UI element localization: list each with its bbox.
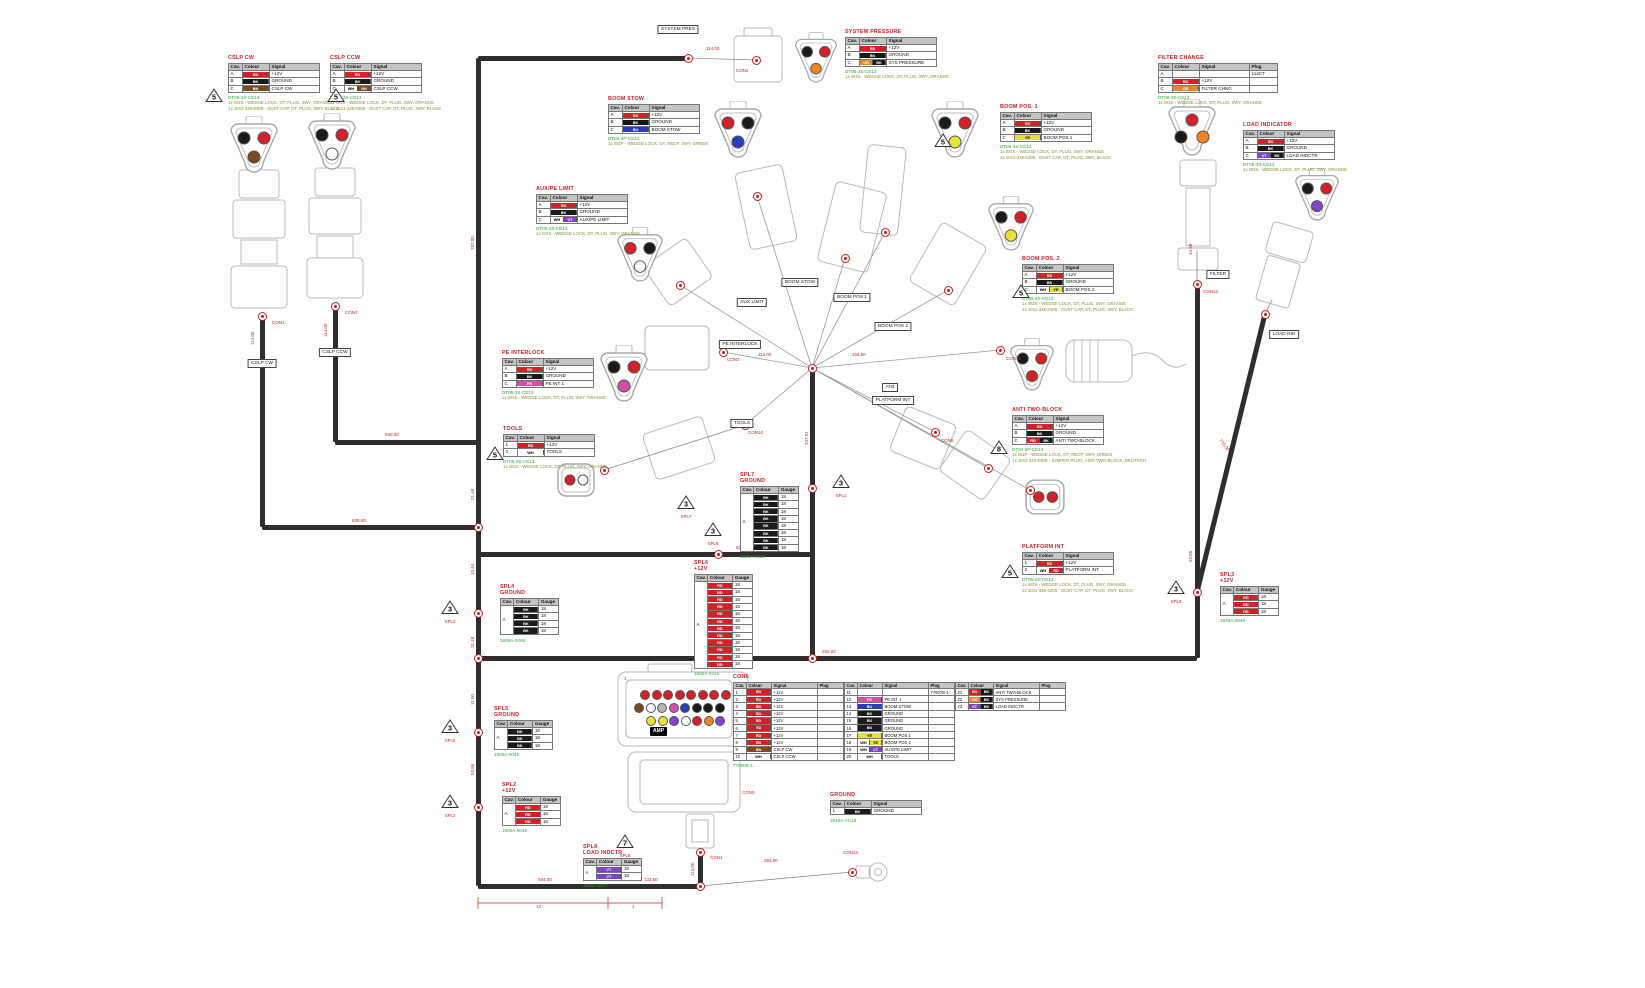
table-title: BOOM POS. 1	[1000, 104, 1111, 110]
part-number: 1926A-0046	[494, 752, 553, 757]
signal-cell: PE INT 1	[883, 696, 929, 703]
column-header: Gauge	[733, 575, 753, 582]
cavity-cell: C	[846, 59, 860, 66]
node-dot	[477, 526, 480, 529]
colour-ye: YE	[1050, 287, 1063, 292]
wire-colour-swatch: BK	[243, 79, 269, 84]
cavity-cell: 10	[734, 753, 747, 760]
junction-node	[676, 281, 685, 290]
amp-pin	[675, 690, 685, 700]
table-row: 17YEBOOM POS 1	[845, 732, 955, 739]
signal-cell: GROUND	[1042, 127, 1092, 134]
dimension-label: 787.00	[470, 236, 475, 250]
cavity-cell: 22	[956, 696, 969, 703]
table-row: 20WHTOOLS	[845, 753, 955, 760]
table-row: CORBKSYS PRESSURE	[846, 59, 937, 66]
wire-colour-swatch: BK	[514, 628, 538, 633]
dt-connector-svg	[986, 196, 1036, 252]
callout-triangle: 3SPL6	[704, 522, 722, 546]
colour-cell: RD	[708, 632, 733, 639]
cavity-cell: 8	[734, 739, 747, 746]
part-number: 1926A-0316	[740, 554, 799, 559]
plug-cell	[1040, 696, 1066, 703]
cavity-cell: A	[503, 366, 517, 373]
colour-cell: RD	[747, 717, 772, 724]
wire-colour-swatch: BK	[754, 495, 778, 500]
wire-colour-swatch: RD	[708, 611, 732, 616]
table-row: 2WHTOOLS	[504, 449, 595, 456]
cavity-cell: A	[1023, 272, 1037, 279]
cavity-cell: A	[229, 71, 243, 78]
gauge-cell: 18	[733, 647, 753, 654]
colour-cell: BK	[514, 620, 539, 627]
column-header: Colour	[1173, 64, 1200, 71]
cavity-cell: 4	[734, 710, 747, 717]
column-header: Gauge	[541, 797, 561, 804]
splice-table: Cav.ColourGaugeARD18RD18RD18	[1220, 586, 1279, 616]
gauge-cell: 18	[622, 866, 642, 873]
plug-cell	[1250, 78, 1278, 85]
svg-text:5: 5	[212, 93, 216, 102]
connector-ref-label: CON2	[736, 68, 749, 73]
signal-cell: GROUND	[883, 717, 929, 724]
table-header-row: Cav.ColourSignal	[331, 64, 422, 71]
colour-cell: VTBK	[969, 703, 994, 710]
svg-text:5: 5	[1019, 289, 1023, 298]
colour-vt: VT	[597, 874, 621, 879]
pin-table-ground: GROUNDCav.ColourSignal1BKGROUND1916A-YC1…	[830, 792, 922, 823]
table-header-row: Cav.ColourGauge	[503, 797, 561, 804]
dimension-label: 114.00	[250, 332, 255, 345]
colour-cell: YE	[858, 732, 883, 739]
splice-ref-label: SPL2	[441, 813, 459, 818]
colour-vt: VT	[1258, 153, 1271, 158]
colour-cell: RD	[747, 739, 772, 746]
table-row: CPKPE INT 1	[503, 380, 594, 387]
colour-cell: BK	[754, 523, 779, 530]
signal-cell: SYS PRESSURE	[887, 59, 937, 66]
signal-cell: TOOLS	[883, 753, 929, 760]
callout-triangle: 7SPL8	[616, 834, 634, 858]
cavity-cell: B	[229, 78, 243, 85]
table-row: CVTBKLOAD INDCTR	[1244, 152, 1335, 159]
two-pin-connector-face	[1024, 476, 1066, 523]
gauge-cell: 18	[539, 620, 559, 627]
pin-table: Cav.ColourSignalARD+12VBBKGROUNDCORBKSYS…	[845, 37, 937, 67]
table-row: 22ORBKSYS PRESSURE	[956, 696, 1066, 703]
colour-rd: RD	[747, 733, 771, 738]
splice-signal: +12V	[1220, 578, 1279, 584]
wire-colour-swatch: BK	[858, 725, 882, 730]
colour-cell: BK	[508, 735, 533, 742]
signal-cell: CSLP CCW	[772, 753, 818, 760]
plug-cell	[818, 739, 844, 746]
colour-rd: RD	[708, 633, 732, 638]
pin-table-tools: TOOLSCav.ColourSignal1RD+12V2WHTOOLSDT06…	[503, 426, 607, 470]
signal-cell: FILTER CHNG	[1200, 85, 1250, 92]
signal-cell: PLATFORM INT	[1064, 567, 1114, 574]
wire-colour-swatch: RD	[623, 113, 649, 118]
table-row: BBKGROUND	[1023, 279, 1114, 286]
junction-node	[808, 364, 817, 373]
dimension-label: 53.86	[470, 764, 475, 775]
callout-triangle: 3SPL1	[832, 474, 850, 498]
colour-bn: BN	[747, 747, 771, 752]
signal-cell: ANTI TWO-BLOCK	[1054, 437, 1104, 444]
splice-table: Cav.ColourGaugeARD18RD18RD18	[502, 796, 561, 826]
cavity-cell: C	[503, 380, 517, 387]
dimension-label: 11.00	[470, 694, 475, 705]
colour-cell: RD	[1234, 601, 1259, 608]
colour-bk: BK	[508, 736, 532, 741]
column-header: Cav.	[1244, 131, 1258, 138]
table-row: 6RD+12V	[734, 724, 844, 731]
colour-cell: YE	[1015, 134, 1042, 141]
cavity-cell: 3	[734, 703, 747, 710]
signal-cell: +12V	[578, 202, 628, 209]
colour-cell: RD	[1234, 594, 1259, 601]
cavity-cell: 6	[734, 724, 747, 731]
pin-table-aux-pe-limit: AUX/PE LIMITCav.ColourSignalARD+12VBBKGR…	[536, 186, 640, 237]
colour-cell: RD	[1037, 560, 1064, 567]
node-dot	[1264, 313, 1267, 316]
column-header: Cav.	[831, 801, 845, 808]
dimension-label: 114.00	[758, 352, 771, 357]
splice-ref-label: SPL4	[441, 619, 459, 624]
gauge-cell: 18	[539, 627, 559, 634]
column-header: Cav.	[1159, 64, 1173, 71]
cavity-cell: 2	[504, 449, 518, 456]
wire-colour-swatch: BK	[754, 545, 778, 550]
con6-groups: Cav.ColourSignalPlug1RD+12V2RD+12V3RD+12…	[733, 682, 1066, 761]
colour-rd: RD	[551, 203, 577, 208]
colour-rd: RD	[516, 812, 540, 817]
colour-rd: RD	[747, 740, 771, 745]
dimension-label: 154.00	[852, 352, 866, 357]
signal-cell: AUX/PE LIMIT	[578, 216, 628, 223]
dt-connector-face	[793, 32, 839, 89]
node-dot	[811, 367, 814, 370]
colour-cell: RD	[1015, 120, 1042, 127]
table-title: TOOLS	[503, 426, 607, 432]
table-header-row: Cav.ColourGauge	[495, 721, 553, 728]
node-dot	[477, 731, 480, 734]
column-header: Cav.	[331, 64, 345, 71]
signal-cell: BOOM POS 1	[883, 732, 929, 739]
colour-rd: RD	[1234, 609, 1258, 614]
wire-colour-swatch: RD	[708, 597, 732, 602]
boxed-label: TOOLS	[730, 419, 753, 428]
colour-rd: RD	[1037, 561, 1063, 566]
amp-pin	[669, 716, 679, 726]
wire-colour-swatch: BK	[345, 79, 371, 84]
node-dot	[477, 806, 480, 809]
column-header: Cav.	[1001, 113, 1015, 120]
wire-colour-swatch: RD	[345, 72, 371, 77]
signal-cell: PE INT 1	[544, 380, 594, 387]
colour-cell: ORBK	[969, 696, 994, 703]
cavity-cell: A	[695, 582, 708, 668]
colour-rd: RD	[708, 583, 732, 588]
wire-segment	[1195, 284, 1200, 658]
gauge-cell: 18	[733, 618, 753, 625]
pin-table-cslp-ccw: CSLP CCWCav.ColourSignalARD+12VBBKGROUND…	[330, 55, 441, 112]
cavity-cell: B	[503, 373, 517, 380]
table-row: BRD+12V	[1159, 78, 1278, 85]
gauge-cell: 18	[733, 632, 753, 639]
junction-node	[714, 550, 723, 559]
triangle-icon: 5	[1012, 284, 1030, 299]
node-dot	[884, 231, 887, 234]
wire-colour-swatch: RD	[551, 203, 577, 208]
colour-bk: BK	[514, 614, 538, 619]
cavity-cell: 23	[956, 703, 969, 710]
colour-cell: BU	[623, 126, 650, 133]
splice-table-spl5: SPL5GROUNDCav.ColourGaugeABK18BK18BK1819…	[494, 706, 553, 757]
junction-node	[752, 56, 761, 65]
svg-text:5: 5	[334, 93, 338, 102]
junction-node	[1261, 310, 1270, 319]
plug-cell	[818, 753, 844, 760]
table-row: 12PKPE INT 1	[845, 696, 955, 703]
signal-cell: +12V	[1064, 560, 1114, 567]
colour-bk: BK	[1015, 128, 1041, 133]
signal-cell: CSLP CCW	[372, 85, 422, 92]
cavity-cell: C	[1001, 134, 1015, 141]
wire-colour-swatch: RD	[708, 640, 732, 645]
cavity-cell: B	[331, 78, 345, 85]
connector-ref-label: CON5	[742, 790, 755, 795]
wire-colour-swatch: BK	[845, 809, 871, 814]
connector-ref-label: CON4	[710, 855, 723, 860]
table-row: 2WHRDPLATFORM INT	[1023, 567, 1114, 574]
dt-connector-svg	[1008, 338, 1056, 392]
column-header: Cav.	[846, 38, 860, 45]
connector-ref-label: CON3	[345, 310, 358, 315]
table-row: 1177907B-1	[845, 689, 955, 696]
svg-text:7: 7	[623, 839, 627, 848]
part-number: 1926A-0077	[583, 883, 642, 888]
cavity-cell: B	[537, 209, 551, 216]
cavity-cell: B	[846, 52, 860, 59]
dt-connector-svg	[1293, 168, 1341, 222]
svg-text:3: 3	[684, 500, 688, 509]
table-header-row: Cav.ColourGauge	[1221, 587, 1279, 594]
table-header-row: Cav.ColourSignal	[609, 105, 700, 112]
junction-node	[848, 868, 857, 877]
amp-pin-count-label: 23	[752, 726, 757, 731]
colour-wh: WH	[858, 740, 870, 745]
svg-text:3: 3	[1174, 585, 1178, 594]
table-header-row: Cav.ColourSignal	[1001, 113, 1092, 120]
table-header-row: Cav.ColourGauge	[741, 487, 799, 494]
cavity-cell: 13	[845, 703, 858, 710]
wire-colour-swatch: BK	[858, 718, 882, 723]
signal-cell: LOAD INDCTR	[994, 703, 1040, 710]
wire-colour-swatch: RD	[747, 704, 771, 709]
table-title: CON6	[733, 674, 1066, 680]
wire-colour-swatch: RD	[708, 647, 732, 652]
colour-rd: RD	[1037, 273, 1063, 278]
wire-colour-swatch: RD	[747, 733, 771, 738]
pin-table-filter-change: FILTER CHANGECav.ColourSignalPlugA114CTB…	[1158, 55, 1278, 106]
amp-pin	[646, 703, 656, 713]
column-header: Signal	[545, 435, 595, 442]
cavity-cell: 18	[845, 739, 858, 746]
signal-cell: BOOM POS 2	[883, 739, 929, 746]
junction-node	[474, 654, 483, 663]
colour-bk: BK	[754, 509, 778, 514]
colour-rd: RD	[345, 72, 371, 77]
table-header-row: Cav.ColourGauge	[695, 575, 753, 582]
column-header: Cav.	[1013, 416, 1027, 423]
column-header: Colour	[508, 721, 533, 728]
assembly-note: 1x W3S - WEDGE LOCK, DT, PLUG, 3WY, ORAN…	[536, 231, 640, 237]
colour-bk: BK	[858, 718, 882, 723]
wire-colour-swatch: RD	[860, 46, 886, 51]
table-title: BOOM POS. 2	[1022, 256, 1133, 262]
colour-cell: RD	[747, 724, 772, 731]
colour-cell: RD	[551, 202, 578, 209]
node-dot	[851, 871, 854, 874]
wire-colour-swatch: BK	[754, 523, 778, 528]
gauge-cell: 18	[779, 501, 799, 508]
cavity-cell: B	[609, 119, 623, 126]
junction-node	[258, 312, 267, 321]
colour-bk: BK	[514, 607, 538, 612]
signal-cell: +12V	[1054, 423, 1104, 430]
svg-text:3: 3	[448, 799, 452, 808]
callout-triangle: 3SPL7	[677, 495, 695, 519]
gauge-cell: 18	[539, 613, 559, 620]
colour-cell: BK	[551, 209, 578, 216]
cavity-cell: B	[1001, 127, 1015, 134]
signal-cell: BOOM STOW	[883, 703, 929, 710]
signal-cell: GROUND	[270, 78, 320, 85]
colour-rd: RD	[747, 718, 771, 723]
dimension-label: 12	[536, 904, 541, 909]
splice-signal: GROUND	[740, 478, 799, 484]
wire-colour-swatch: RD	[1234, 609, 1258, 614]
junction-node	[944, 286, 953, 295]
node-dot	[1029, 489, 1032, 492]
colour-bk: BK	[845, 809, 871, 814]
signal-cell: +12V	[772, 739, 818, 746]
wire-colour-swatch: RD	[1234, 602, 1258, 607]
wire-colour-swatch: RD	[747, 740, 771, 745]
colour-cell: WHVT	[551, 216, 578, 223]
wire-segment	[478, 56, 688, 61]
cavity-cell: A	[501, 606, 514, 635]
con6-group: Cav.ColourSignalPlug1RD+12V2RD+12V3RD+12…	[733, 682, 844, 761]
pin-table: Cav.ColourSignalARD+12VBBKGROUNDCBUBOOM …	[608, 104, 700, 134]
junction-node	[1193, 588, 1202, 597]
colour-bk: BK	[754, 545, 778, 550]
boxed-label: FILTER	[1206, 270, 1229, 279]
wire-colour-swatch: VTBK	[969, 704, 993, 709]
colour-rd: RD	[1234, 602, 1258, 607]
colour-cell: BK	[858, 710, 883, 717]
colour-cell: RD	[516, 818, 541, 825]
dt-connector-face	[1293, 168, 1341, 227]
wire-colour-swatch: BK	[514, 614, 538, 619]
wire-colour-swatch: WHBN	[345, 86, 371, 91]
dimension-label: 114.00	[690, 863, 695, 876]
table-row: BBKGROUND	[1013, 430, 1104, 437]
colour-cell: RD	[708, 639, 733, 646]
node-dot	[261, 315, 264, 318]
node-dot	[699, 885, 702, 888]
colour-pk: PK	[517, 381, 543, 386]
signal-cell: BOOM STOW	[650, 126, 700, 133]
splice-ref-label: SPL5	[441, 738, 459, 743]
junction-node	[881, 228, 890, 237]
cavity-cell: C	[1013, 437, 1027, 444]
node-dot	[934, 431, 937, 434]
pin-table: Cav.ColourSignalARD+12VBBKGROUNDCPKPE IN…	[502, 358, 594, 388]
wire-colour-swatch: RDBK	[1027, 438, 1053, 443]
colour-cell: WH	[858, 753, 883, 760]
junction-node	[984, 464, 993, 473]
cavity-cell: A	[537, 202, 551, 209]
colour-rd: RD	[708, 626, 732, 631]
wire-colour-swatch: BK	[1015, 128, 1041, 133]
signal-cell: CSLP CW	[772, 746, 818, 753]
colour-cell: RD	[516, 804, 541, 811]
table-row: ARD+12V	[229, 71, 320, 78]
colour-wh: WH	[858, 747, 870, 752]
junction-node	[696, 848, 705, 857]
plug-cell	[1040, 689, 1066, 696]
table-header-row: Cav.ColourSignal	[1023, 265, 1114, 272]
cavity-cell: 1	[1023, 560, 1037, 567]
assembly-note: 1x 1011-345-0305 - DUST CAP, DT, PLUG, 3…	[228, 106, 339, 112]
colour-cell: BK	[243, 78, 270, 85]
cavity-cell: 14	[845, 710, 858, 717]
colour-or: OR	[969, 697, 981, 702]
boxed-label: CSLP CW	[248, 359, 277, 368]
splice-ref-label: SPL1	[832, 493, 850, 498]
colour-rd: RD	[708, 597, 732, 602]
table-header-row: Cav.ColourSignal	[229, 64, 320, 71]
wire-colour-swatch: BU	[623, 127, 649, 132]
colour-bk: BK	[981, 704, 993, 709]
colour-cell: RD	[243, 71, 270, 78]
connector-ref-label: CON9	[941, 438, 954, 443]
column-header: Gauge	[622, 859, 642, 866]
pin-table-pe-interlock: PE INTERLOCKCav.ColourSignalARD+12VBBKGR…	[502, 350, 606, 401]
assembly-note: 1x W3S - WEDGE LOCK, DT, PLUG, 3WY, ORAN…	[845, 74, 949, 80]
cavity-cell: 2	[734, 696, 747, 703]
colour-ye: YE	[870, 740, 882, 745]
dimension-label: 635.00	[352, 518, 366, 523]
plug-cell	[818, 710, 844, 717]
splice-signal: GROUND	[500, 590, 559, 596]
table-row: 23VTBKLOAD INDCTR	[956, 703, 1066, 710]
triangle-icon: 3	[441, 600, 459, 615]
pin-table-boom-pos-1: BOOM POS. 1Cav.ColourSignalARD+12VBBKGRO…	[1000, 104, 1111, 161]
wire-colour-swatch: BN	[243, 86, 269, 91]
node-dot	[477, 612, 480, 615]
wire-colour-swatch: RD	[708, 633, 732, 638]
table-row: AVT18	[584, 866, 642, 873]
colour-bk: BK	[981, 689, 993, 694]
colour-cell: RD	[747, 732, 772, 739]
colour-cell: RD	[1258, 138, 1285, 145]
boxed-label: ATB	[882, 383, 898, 392]
pin-table: Cav.ColourSignal1BKGROUND	[830, 800, 922, 815]
table-row: ARD+12V	[1023, 272, 1114, 279]
